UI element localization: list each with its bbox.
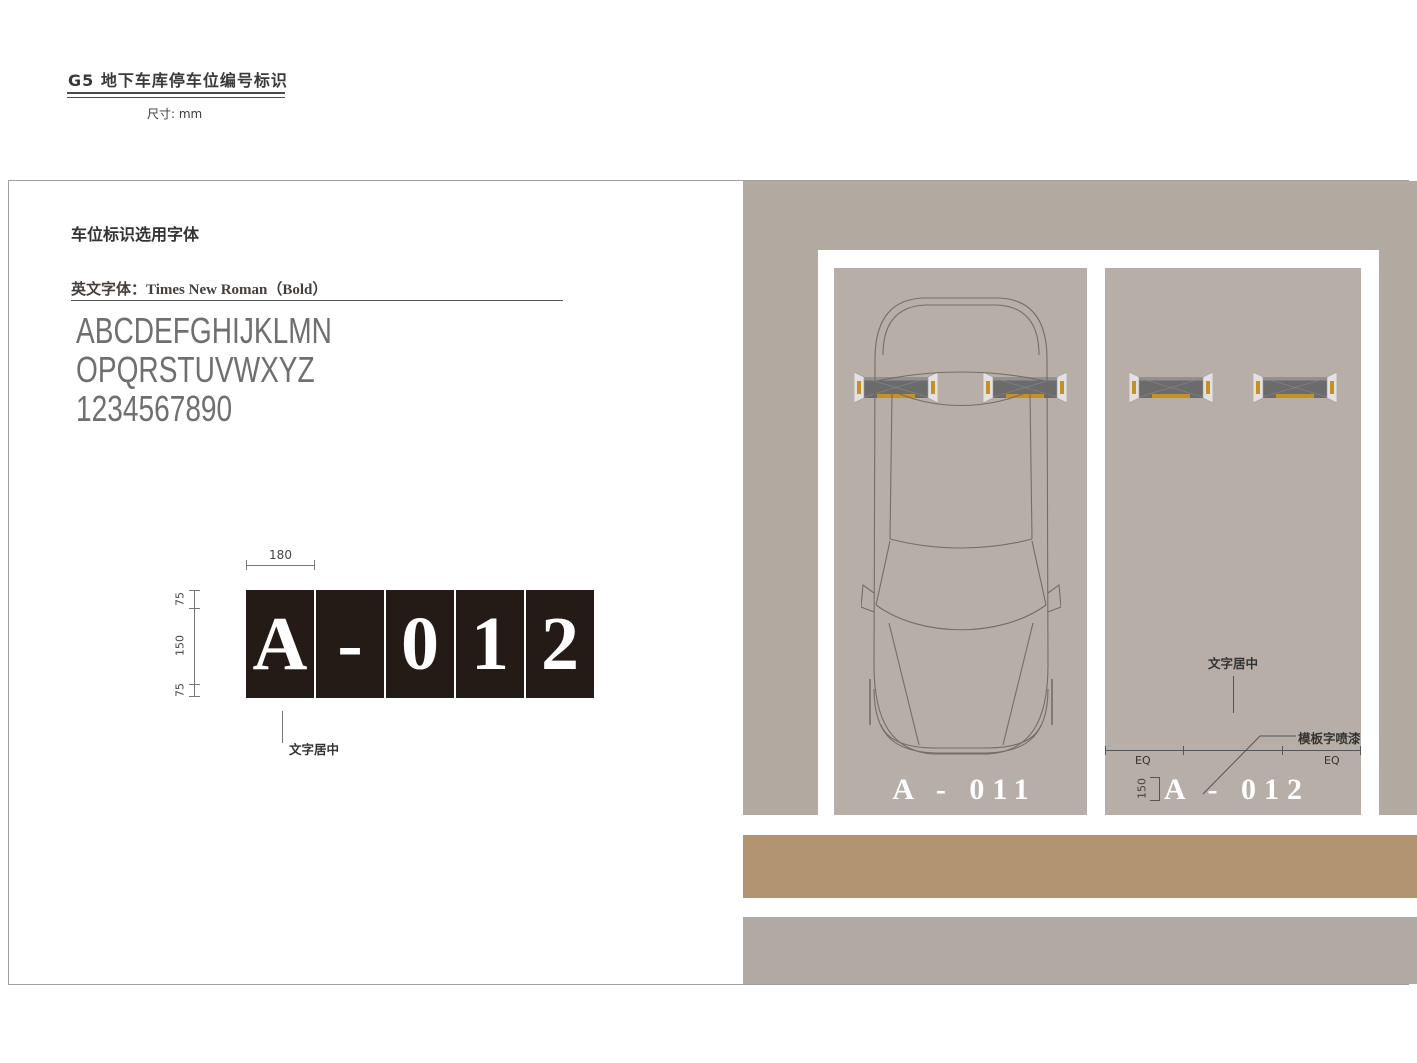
width-dim-tick-left <box>246 560 247 570</box>
height-dim-tick-1 <box>189 590 200 591</box>
height-dim-tick-2 <box>189 608 200 609</box>
center-note: 文字居中 <box>289 739 339 758</box>
alphabet-line-1: ABCDEFGHIJKLMN <box>76 311 332 350</box>
unit-label: 尺寸: mm <box>147 105 202 122</box>
page: { "header": { "title": "G5 地下车库停车位编号标识",… <box>0 0 1417 1063</box>
width-dim-tick-right <box>314 560 315 570</box>
sign-tile: 1 <box>456 590 524 698</box>
space-number: A - 011 <box>834 773 1087 807</box>
top-margin-dim-label: 75 <box>172 588 188 610</box>
sign-tile: A <box>246 590 314 698</box>
parking-space-a012: 文字居中 EQ EQ 150 模板字喷漆 A - 012 <box>1105 268 1361 815</box>
alphabet-line-2: OPQRSTUVWXYZ <box>76 350 332 389</box>
bottom-margin-dim-label: 75 <box>172 679 188 701</box>
title-underline-thick <box>67 92 285 94</box>
alphabet-specimen: ABCDEFGHIJKLMN OPQRSTUVWXYZ 1234567890 <box>76 311 332 428</box>
sign-tile: 2 <box>526 590 594 698</box>
curb-band <box>743 917 1417 984</box>
subtitle-rule <box>71 300 563 301</box>
center-note-leader <box>282 711 283 743</box>
lane-edge-line <box>743 898 1417 917</box>
parking-panel: A - 011 <box>743 181 1417 984</box>
height-dim-tick-4 <box>189 696 200 697</box>
title-underline-thin <box>67 97 285 98</box>
alphabet-line-3: 1234567890 <box>76 389 332 428</box>
parking-space-a011: A - 011 <box>834 268 1087 815</box>
stall-end-line <box>743 815 1417 835</box>
font-subtitle: 英文字体：Times New Roman（Bold） <box>71 278 327 299</box>
font-section-title: 车位标识选用字体 <box>71 221 199 245</box>
paint-note-leader <box>1105 268 1361 815</box>
page-title: G5 地下车库停车位编号标识 <box>68 67 288 91</box>
sign-tile: 0 <box>386 590 454 698</box>
width-dim-line <box>246 565 315 566</box>
height-dim-tick-3 <box>189 684 200 685</box>
car-top-view-icon <box>861 293 1061 763</box>
space-number: A - 012 <box>1105 773 1361 807</box>
sign-tile: - <box>316 590 384 698</box>
width-dim-label: 180 <box>246 548 315 562</box>
sign-board: A - 0 1 2 <box>246 590 594 698</box>
height-dim-line <box>194 590 195 697</box>
drive-lane-band <box>743 835 1417 898</box>
text-height-dim-label: 150 <box>172 608 188 684</box>
